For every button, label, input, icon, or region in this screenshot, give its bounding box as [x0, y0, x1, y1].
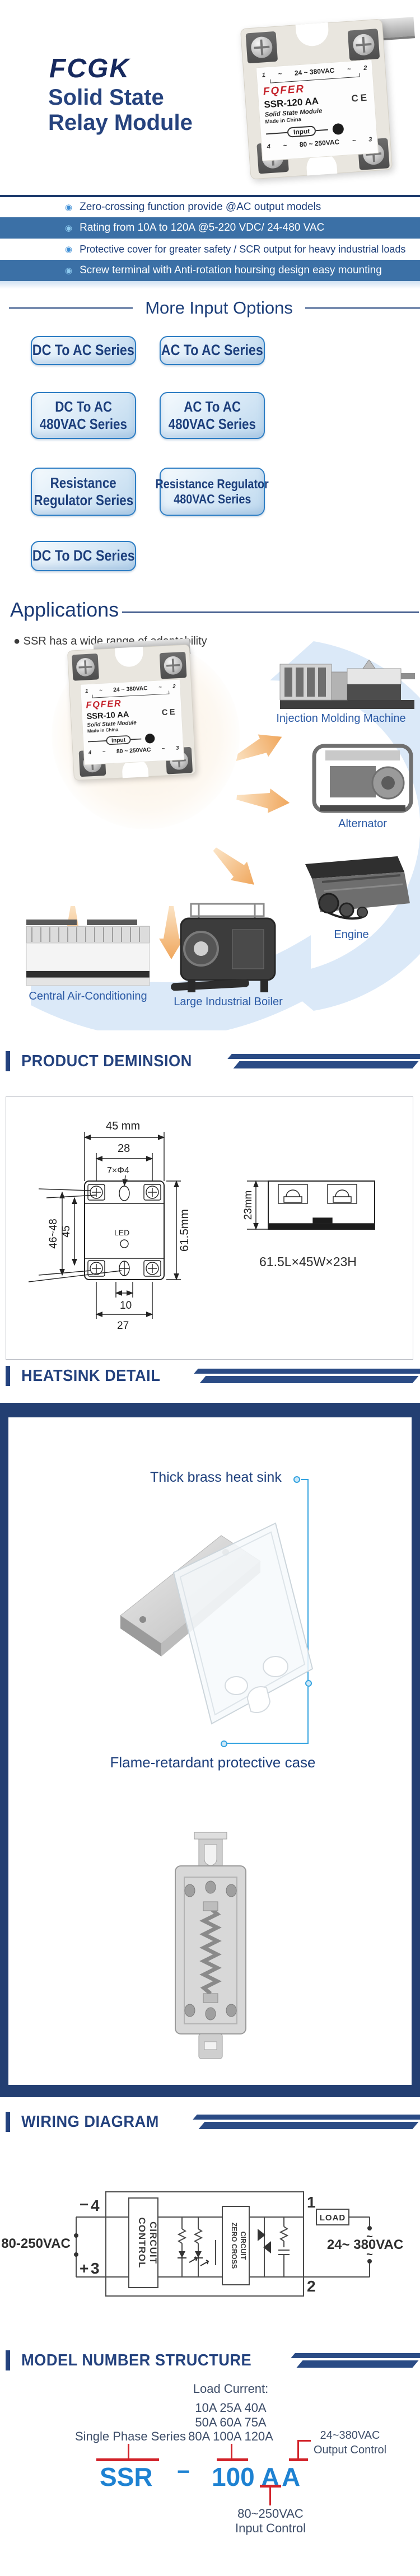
relay-body: 1 ~ 24 ~ 380VAC ~ 2 FQFER SSR-120 AA CE … — [240, 18, 393, 179]
hero-product-photo: 1 ~ 24 ~ 380VAC ~ 2 FQFER SSR-120 AA CE … — [206, 0, 420, 188]
input-voltage: 80 ~ 250VAC — [299, 138, 339, 148]
section-title: WIRING DIAGRAM — [21, 2113, 159, 2131]
terminal-2: 2 — [363, 65, 367, 72]
relay-model: SSR-10 AA — [86, 710, 129, 721]
dim-inner-width: 28 — [118, 1142, 130, 1155]
screw-terminal-icon — [72, 654, 99, 681]
series-button-ac-to-ac-480[interactable]: AC To AC 480VAC Series — [160, 392, 265, 439]
control-circuit-label-1: CONTROL — [137, 2217, 147, 2268]
dim-total-height: 61.5mm — [178, 1209, 191, 1252]
section-header-model-number: MODEL NUMBER STRUCTURE — [0, 2350, 420, 2371]
application-label-ac: Central Air-Conditioning — [12, 990, 164, 1003]
header-stripes-icon — [179, 1366, 420, 1386]
ac-symbol: ~ — [162, 746, 165, 752]
red-connector — [231, 2444, 232, 2460]
load-current-row1: 10A 25A 40A — [164, 2401, 298, 2415]
header-accent-bar — [6, 2350, 10, 2370]
product-page: FCGK Solid State Relay Module 1 ~ 24 ~ 3… — [0, 0, 420, 2576]
output-voltage-label: 24~ 380VAC — [327, 2237, 403, 2252]
bullet-icon: ◉ — [65, 224, 72, 232]
zero-cross-label-1: ZERO CROSS — [230, 2223, 238, 2269]
feature-item: ◉ Rating from 10A to 120A @5-220 VDC/ 24… — [0, 217, 420, 239]
dim-bottom-outer: 27 — [117, 1320, 129, 1332]
arrow-to-engine-icon — [207, 840, 263, 894]
red-connector — [297, 2440, 311, 2442]
more-input-options-heading: More Input Options — [0, 297, 420, 319]
application-label-alternator: Alternator — [311, 818, 414, 830]
header-accent-bar — [6, 1051, 10, 1071]
ac-symbol: ~ — [158, 684, 162, 690]
screw-terminal-icon — [160, 652, 187, 679]
input-voltage-label: 80-250VAC — [1, 2236, 71, 2251]
terminal-2: 2 — [172, 684, 176, 690]
engine-image — [288, 848, 414, 927]
din-rail-clip-image — [158, 1830, 262, 2076]
applications-heading: Applications — [10, 598, 119, 622]
screw-terminal-icon — [348, 29, 380, 61]
header-accent-bar — [6, 1366, 10, 1386]
housing-notch — [296, 22, 330, 47]
page-title-line1: Solid State — [48, 85, 193, 110]
ac-symbol: ~ — [283, 142, 287, 149]
series-button-dc-to-ac[interactable]: DC To AC Series — [31, 336, 136, 365]
ac-symbol: ~ — [347, 66, 351, 73]
red-connector — [128, 2444, 129, 2460]
alternator-image — [311, 743, 414, 816]
terminal-3: 3 — [368, 136, 372, 143]
input-voltage: 80 ~ 250VAC — [116, 746, 151, 754]
application-label-boiler: Large Industrial Boiler — [160, 996, 297, 1009]
model-code-output: A — [282, 2462, 300, 2492]
header-stripes-icon — [213, 1051, 420, 1071]
feature-item: ◉ Protective cover for greater safety / … — [0, 239, 420, 260]
application-label-injection: Injection Molding Machine — [262, 712, 420, 725]
callout-dot-icon — [293, 1476, 300, 1483]
model-code-series: SSR — [100, 2462, 153, 2492]
model-code-dash: − — [177, 2460, 190, 2485]
dim-inner-height: 45 — [60, 1225, 72, 1237]
led-dot-icon — [145, 734, 155, 744]
red-connector — [217, 2458, 248, 2461]
terminal-2: 2 — [307, 2278, 316, 2295]
callout-line — [227, 1743, 309, 1744]
series-button-resistance-regulator-480[interactable]: Resistance Regulator 480VAC Series — [160, 468, 265, 516]
page-title-line2: Relay Module — [48, 110, 193, 136]
feature-text: Protective cover for greater safety / SC… — [80, 244, 405, 255]
bar-fade — [0, 281, 420, 289]
applications-relay-photo: 1 ~ 24 ~ 380VAC ~ 2 FQFER SSR-10 AA CE S… — [67, 645, 195, 780]
terminal-minus: − — [80, 2196, 88, 2213]
output-control-label: Output Control — [311, 2444, 389, 2457]
series-button-dc-to-dc[interactable]: DC To DC Series — [31, 541, 136, 571]
output-control-voltage: 24~380VAC — [314, 2429, 386, 2442]
dim-width: 45 mm — [106, 1120, 140, 1132]
section-header-wiring: WIRING DIAGRAM — [0, 2111, 420, 2132]
red-connector — [297, 2440, 299, 2460]
red-connector — [269, 2488, 271, 2505]
heatsink-label-bottom: Flame-retardant protective case — [84, 1754, 342, 1771]
heading-line — [305, 307, 420, 309]
section-title: HEATSINK DETAIL — [21, 1367, 160, 1385]
application-label-engine: Engine — [288, 928, 414, 941]
load-current-title: Load Current: — [164, 2382, 298, 2396]
input-label: Input — [106, 735, 131, 745]
heatsink-image — [90, 1501, 325, 1736]
load-label: LOAD — [320, 2213, 346, 2223]
red-connector — [96, 2458, 159, 2461]
terminal-1: 1 — [85, 688, 88, 694]
callout-dot-icon — [221, 1740, 227, 1747]
ce-mark-icon: CE — [351, 92, 370, 104]
arrow-to-alternator-icon — [235, 785, 291, 815]
terminal-3: 3 — [91, 2260, 100, 2277]
wiring-diagram: CONTROL CIRCUIT ZERO CROSS CIRCUIT LOAD … — [0, 2173, 420, 2307]
zero-cross-label-2: CIRCUIT — [239, 2232, 247, 2260]
dim-hole: 7×Φ4 — [107, 1166, 129, 1175]
model-code-current: 100 — [212, 2462, 255, 2492]
series-button-dc-to-ac-480[interactable]: DC To AC 480VAC Series — [31, 392, 136, 439]
terminal-1: 1 — [262, 72, 265, 78]
relay-label: 1 ~ 24 ~ 380VAC ~ 2 FQFER SSR-10 AA CE S… — [80, 679, 184, 766]
central-air-conditioning-image — [20, 916, 157, 992]
section-title: MODEL NUMBER STRUCTURE — [21, 2351, 251, 2370]
dim-bottom-inner: 10 — [120, 1300, 132, 1312]
screw-terminal-icon — [245, 31, 278, 64]
page-title: Solid State Relay Module — [48, 85, 193, 136]
series-label: Single Phase Series — [72, 2429, 189, 2444]
header-stripes-icon — [276, 2350, 420, 2370]
section-header-dimension: PRODUCT DEMINSION — [0, 1051, 420, 1072]
section-title: PRODUCT DEMINSION — [21, 1052, 192, 1071]
injection-molding-machine-image — [279, 660, 416, 713]
input-label: Input — [287, 125, 316, 138]
red-connector — [289, 2458, 308, 2461]
relay-label: 1 ~ 24 ~ 380VAC ~ 2 FQFER SSR-120 AA CE … — [256, 59, 379, 161]
series-button-resistance-regulator[interactable]: Resistance Regulator Series — [31, 468, 136, 516]
dim-summary: 61.5L×45W×23H — [259, 1254, 357, 1269]
header-accent-bar — [6, 2112, 10, 2132]
terminal-4: 4 — [88, 750, 92, 756]
feature-text: Zero-crossing function provide @AC outpu… — [80, 201, 321, 213]
ac-symbol: ~ — [278, 71, 282, 77]
ce-mark-icon: CE — [161, 707, 177, 718]
series-button-ac-to-ac[interactable]: AC To AC Series — [160, 336, 265, 365]
protective-case — [174, 1523, 312, 1724]
ac-symbol: ~ — [99, 688, 102, 694]
feature-text: Screw terminal with Anti-rotation hoursi… — [80, 264, 382, 277]
heading-line — [122, 612, 419, 613]
heading-line — [9, 307, 133, 309]
feature-text: Rating from 10A to 120A @5-220 VDC/ 24-4… — [80, 222, 324, 234]
heading-text: More Input Options — [145, 298, 293, 318]
load-current-row2: 50A 60A 75A — [164, 2415, 298, 2430]
large-industrial-boiler-image — [165, 897, 291, 997]
dim-led-label: LED — [114, 1228, 129, 1237]
terminal-1: 1 — [307, 2194, 316, 2211]
ac-symbol: ~ — [352, 137, 356, 144]
callout-line — [307, 1687, 309, 1744]
terminal-4: 4 — [91, 2197, 100, 2214]
ac-symbol: ~ — [102, 749, 106, 755]
input-control-voltage: 80~250VAC — [228, 2507, 312, 2521]
led-dot-icon — [332, 123, 344, 135]
control-circuit-label-2: CIRCUIT — [148, 2222, 158, 2264]
input-control-label: Input Control — [228, 2521, 312, 2536]
header-stripes-icon — [178, 2112, 420, 2132]
dimension-box: 45 mm 28 7×Φ4 46~48 45 LED 61.5mm 10 27 … — [6, 1096, 413, 1360]
bullet-icon: ◉ — [65, 203, 72, 212]
section-header-heatsink: HEATSINK DETAIL — [0, 1365, 420, 1387]
bullet-icon: ◉ — [65, 245, 72, 254]
heatsink-label-top: Thick brass heat sink — [150, 1469, 282, 1486]
terminal-4: 4 — [267, 143, 270, 150]
dimension-drawing: 45 mm 28 7×Φ4 46~48 45 LED 61.5mm 10 27 … — [6, 1097, 413, 1358]
terminal-3: 3 — [176, 745, 179, 752]
dim-depth: 23mm — [242, 1191, 254, 1220]
dim-height-range: 46~48 — [48, 1219, 59, 1248]
brand-logo: FCGK — [49, 53, 130, 84]
feature-item: ◉ Screw terminal with Anti-rotation hour… — [0, 260, 420, 281]
bullet-icon: ◉ — [65, 267, 72, 275]
feature-item: ◉ Zero-crossing function provide @AC out… — [0, 197, 420, 217]
terminal-plus: + — [80, 2260, 88, 2277]
